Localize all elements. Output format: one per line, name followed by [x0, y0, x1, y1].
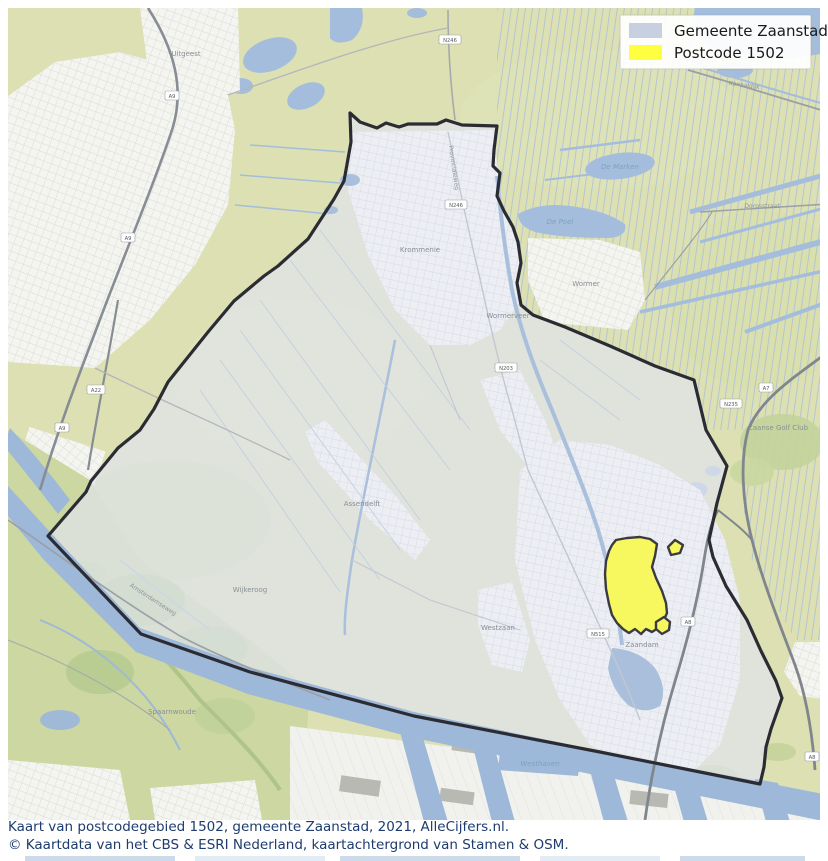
svg-text:N246: N246	[443, 38, 457, 44]
road-shield: A9	[121, 233, 135, 242]
figure: UitgeestermeerDe MarkenDe PoelUitgeestKr…	[0, 0, 828, 861]
svg-text:A9: A9	[125, 236, 132, 242]
map-label: Dorpsstraat	[744, 203, 780, 210]
road-shield: N246	[445, 200, 467, 209]
map-label: Wijkeroog	[233, 586, 268, 594]
svg-text:N515: N515	[591, 632, 605, 638]
svg-text:A7: A7	[763, 386, 770, 392]
svg-text:N235: N235	[724, 402, 738, 408]
caption-line-1: Kaart van postcodegebied 1502, gemeente …	[8, 819, 820, 837]
map-label: Krommenie	[400, 246, 440, 254]
map-label: De Poel	[547, 218, 574, 226]
road-shield: A7	[759, 383, 773, 392]
map-label: Zaandam	[625, 641, 659, 649]
road-shield: A8	[805, 752, 819, 761]
road-shield: N235	[720, 399, 742, 408]
map-label: Spaarnwoude	[148, 708, 196, 716]
svg-text:N246: N246	[449, 203, 463, 209]
legend: Gemeente Zaanstad Postcode 1502	[620, 15, 811, 69]
road-shield: A8	[681, 617, 695, 626]
caption-line-2: © Kaartdata van het CBS & ESRI Nederland…	[8, 837, 820, 855]
caption: Kaart van postcodegebied 1502, gemeente …	[8, 819, 820, 854]
road-shield: A9	[165, 91, 179, 100]
map-label: Uitgeest	[171, 50, 201, 58]
svg-text:A8: A8	[809, 755, 816, 761]
legend-label-gemeente: Gemeente Zaanstad	[674, 22, 828, 40]
map-label: Westzaan	[481, 624, 515, 632]
map-label: Wormerveer	[486, 312, 529, 320]
map-label: Assendelft	[344, 500, 381, 508]
svg-text:A22: A22	[91, 388, 101, 394]
map-label: Westhaven	[520, 760, 559, 768]
svg-text:N203: N203	[499, 366, 513, 372]
road-shield: N203	[495, 363, 517, 372]
map-label: De Marken	[601, 163, 639, 171]
road-shield: A22	[87, 385, 105, 394]
svg-text:A9: A9	[59, 426, 66, 432]
legend-item-postcode: Postcode 1502	[629, 43, 802, 62]
svg-text:A8: A8	[685, 620, 692, 626]
legend-swatch-gemeente	[629, 23, 662, 38]
road-shield: A9	[55, 423, 69, 432]
map-canvas: UitgeestermeerDe MarkenDe PoelUitgeestKr…	[0, 0, 828, 861]
map-label: Wormer	[572, 280, 600, 288]
road-shield: N246	[439, 35, 461, 44]
legend-label-postcode: Postcode 1502	[674, 44, 785, 62]
legend-swatch-postcode	[629, 45, 662, 60]
map-label: Zaanse Golf Club	[748, 424, 809, 432]
svg-text:A9: A9	[169, 94, 176, 100]
bottom-map-sliver	[25, 856, 805, 861]
road-shield: N515	[587, 629, 609, 638]
legend-item-gemeente: Gemeente Zaanstad	[629, 21, 802, 40]
